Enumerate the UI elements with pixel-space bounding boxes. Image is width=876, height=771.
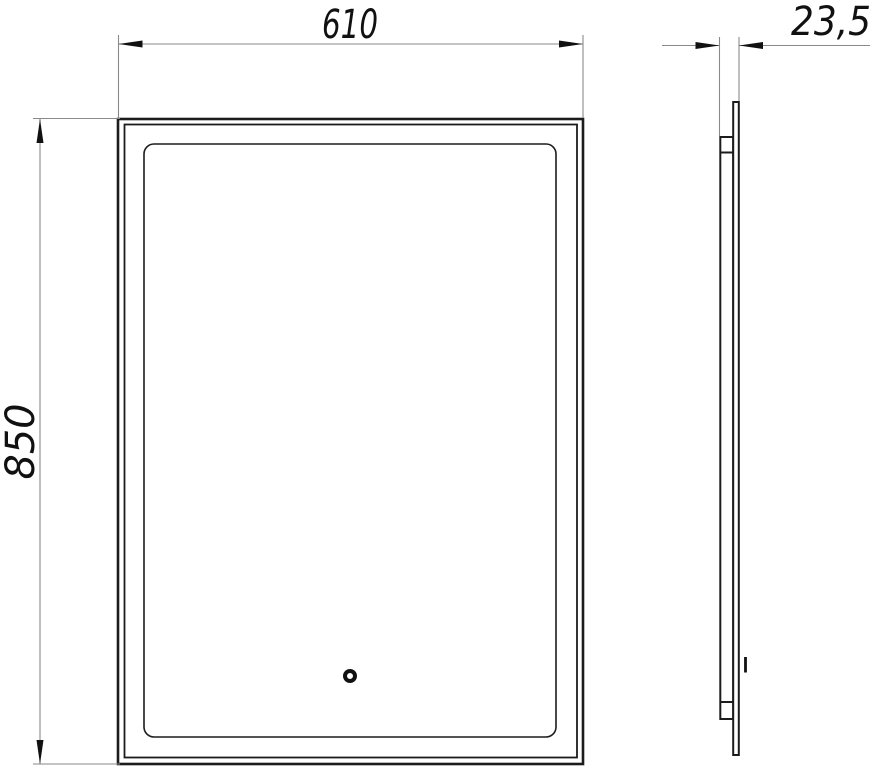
body-profile (720, 137, 733, 719)
arrowhead-right (559, 41, 583, 48)
side-view (720, 102, 745, 755)
dimension-depth-label: 23,5 (791, 0, 871, 45)
dimension-width-label: 610 (322, 2, 378, 48)
arrowhead-right (739, 42, 763, 49)
front-view (118, 119, 583, 764)
dimension-height-label: 850 (0, 404, 44, 480)
outer-frame-rect (118, 119, 583, 764)
dimension-height: 850 (0, 119, 120, 765)
arrowhead-left (696, 42, 720, 49)
arrowhead-bottom (37, 740, 44, 764)
arrowhead-top (37, 119, 44, 143)
dimension-depth: 23,5 (662, 0, 871, 136)
technical-drawing-canvas: 610 850 23,5 (0, 0, 876, 771)
dimension-width: 610 (119, 2, 584, 118)
arrowhead-left (119, 41, 143, 48)
mirror-dimension-drawing: 610 850 23,5 (0, 0, 876, 771)
glass-profile (733, 102, 739, 755)
